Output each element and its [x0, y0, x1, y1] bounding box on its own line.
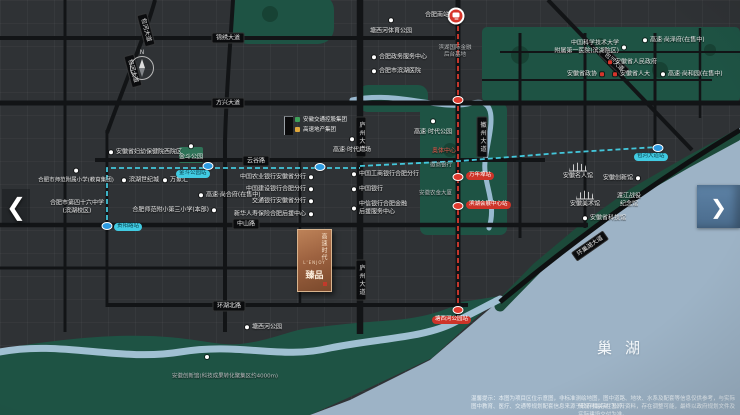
wannianbu-station-pill: 万年埠站	[466, 172, 494, 180]
left-chevron-icon: ❮	[6, 193, 26, 221]
gaosu-shangzefu-label: 高速·尚泽府(在售中)	[643, 36, 705, 44]
poi-dot-marker	[352, 206, 356, 210]
poi-dot-marker	[352, 187, 356, 191]
gaosu-shangheyuan-label-text: 高速·尚和园(在售中)	[668, 70, 723, 78]
poi-dot-marker	[199, 193, 203, 197]
no46-middle-school-label-text: 合肥市第四十六中学 (滨湖校区)	[50, 200, 104, 215]
convention-center-station-pill: 滨湖会展中心站	[466, 201, 511, 209]
poi-dot-marker	[205, 355, 209, 359]
poi-dot-marker	[109, 150, 113, 154]
dujiang-memorial-label: 渡江战役 纪念馆	[617, 193, 641, 208]
poi-dot-marker	[309, 187, 313, 191]
poi-dot-marker	[372, 69, 376, 73]
road-label-pill: 中山路	[232, 219, 259, 230]
poi-dot-marker	[661, 72, 665, 76]
sports-center-label-text: 奥体中心	[432, 147, 456, 155]
poi-dot-marker	[309, 199, 313, 203]
plaque-project-name: 臻品	[298, 268, 331, 281]
metro-station-marker	[102, 222, 113, 230]
dujiang-memorial-label-text: 渡江战役 纪念馆	[617, 193, 641, 208]
boc-bank-label: 中国银行	[352, 185, 383, 193]
icbc-bank-label-text: 中国工商银行合肥分行	[359, 170, 419, 178]
plaque-latin-text: L'ENJOY	[298, 260, 331, 265]
location-map: 高速时代 L'ENJOY 臻品 N ❮ ❯ 巢湖 温馨提示：本图为项目区位示意图…	[0, 0, 740, 415]
jindou-park-label: 金斗公园	[179, 153, 203, 161]
science-museum-label: 安徽省科技馆	[583, 214, 626, 222]
disclaimer-line-2: 图中教育、医疗、交通等规划配套信息来源于政府相关部门公开资料，存在调整可能，最终…	[470, 404, 736, 415]
developer-logo-1: 高速地产集团	[295, 125, 336, 133]
anhui-zhengxie-label: 安徽省政协	[567, 70, 604, 78]
red-square-marker	[608, 60, 612, 64]
poi-dot-marker	[122, 178, 126, 182]
binhu-century-city-label-text: 滨湖世纪城	[129, 176, 159, 184]
normal-primary-school-label-text: 合肥师范附小第三小学(本部)	[132, 206, 209, 214]
nongjin-tower-label: 安徽农金大厦	[419, 191, 452, 198]
tangxihe-park-station-pill: 塘西河公园站	[432, 316, 471, 324]
road-label-pill: 方兴大道	[211, 98, 244, 109]
red-square-marker	[600, 72, 604, 76]
poi-dot-marker	[643, 38, 647, 42]
road-label-pill: 徽州大道	[477, 117, 488, 158]
icbc-bank-label: 中国工商银行合肥分行	[352, 170, 419, 178]
road-label-pill: 环湖北路	[212, 301, 245, 312]
gaosu-times-park-label-text: 高速·时代公园	[414, 128, 452, 136]
poi-dot-marker	[74, 169, 78, 173]
financial-backoffice-label-text: 滨湖国际金融 后台基地	[438, 45, 471, 59]
road-label-pill: 云谷路	[242, 156, 269, 167]
tangxihe-park-label-text: 塘西河公园	[252, 323, 282, 331]
innovation-hall-label-text: 安徽创新馆	[603, 174, 633, 182]
normal-attached-primary-label: 合肥市师范附属小学(教育集团)	[38, 178, 114, 185]
binhu-hospital-label: 合肥市滨湖医院	[372, 67, 421, 75]
poi-dot-marker	[372, 55, 376, 59]
plaque-seal-icon	[323, 282, 327, 286]
developer-logo-icon	[295, 117, 300, 122]
tangxihe-park-label: 塘西河公园	[245, 323, 282, 331]
metro-station-marker	[453, 96, 464, 104]
science-museum-label-text: 安徽省科技馆	[590, 214, 626, 222]
bocom-bank-label: 交通银行安徽省分行	[252, 197, 313, 205]
nongjin-tower-label-text: 安徽农金大厦	[419, 191, 452, 198]
tangxihe-sports-park-label: 塘西河体育公园	[370, 27, 412, 35]
art-museum-label-text: 安徽美术馆	[570, 200, 600, 208]
ustc-hospital-label: 中国科学技术大学 附属第一医院(滨湖院区)	[554, 40, 626, 55]
tower-sketch-icon	[284, 116, 293, 135]
gaosu-times-park-label: 高速·时代公园	[414, 128, 452, 136]
metro-station-marker	[453, 173, 464, 181]
compass-needle-icon	[139, 59, 145, 68]
jindou-park-label-text: 金斗公园	[179, 153, 203, 161]
huishang-bank-label: 徽商银行	[430, 163, 452, 170]
baohe-avenue-station-pill: 包河大道站	[634, 153, 668, 161]
poi-dot-marker	[212, 208, 216, 212]
ustc-hospital-label-text: 中国科学技术大学 附属第一医院(滨湖院区)	[554, 40, 619, 55]
sports-center-label: 奥体中心	[432, 147, 456, 155]
metro-station-marker	[315, 163, 326, 171]
gaosu-shanghefu-label: 高速·尚合府(在售中)	[199, 191, 261, 199]
gov-service-center-label: 合肥政务服务中心	[372, 53, 427, 61]
compass-north-label: N	[140, 49, 145, 56]
prev-arrow-button[interactable]: ❮	[2, 189, 30, 225]
metro-station-marker	[453, 306, 464, 314]
poi-dot-marker	[350, 137, 354, 141]
huishang-bank-label-text: 徽商银行	[430, 163, 452, 170]
poi-dot-marker	[352, 172, 356, 176]
poi-dot-marker	[622, 45, 626, 49]
gaosu-shanghefu-label-text: 高速·尚合府(在售中)	[206, 191, 261, 199]
abc-bank-label-text: 中国农业银行安徽省分行	[240, 173, 306, 181]
citic-bank-label: 中信银行合肥金融 后援服务中心	[352, 201, 407, 216]
xinhua-insurance-label: 新华人寿保险合肥后援中心	[234, 210, 313, 218]
no46-middle-school-label: 合肥市第四十六中学 (滨湖校区)	[50, 200, 104, 215]
railway-station-icon	[448, 8, 465, 25]
abc-bank-label: 中国农业银行安徽省分行	[240, 173, 313, 181]
poi-dot-marker	[636, 176, 640, 180]
next-arrow-button[interactable]: ❯	[697, 185, 740, 228]
anhui-innovation-hall-note-text: 安徽创新馆(科技成果转化聚集区约4000m)	[172, 374, 278, 381]
right-chevron-icon: ❯	[710, 195, 727, 219]
anhui-gov-label: 安徽省人民政府	[608, 58, 657, 66]
metro-station-marker	[203, 162, 214, 170]
hefei-south-station-label: 合肥南站	[425, 11, 449, 19]
innovation-hall-label: 安徽创新馆	[603, 174, 640, 182]
red-square-marker	[613, 72, 617, 76]
xinhua-insurance-label-text: 新华人寿保险合肥后援中心	[234, 210, 306, 218]
anhui-gov-label-text: 安徽省人民政府	[615, 58, 657, 66]
anhui-zhengxie-label-text: 安徽省政协	[567, 70, 597, 78]
compass-icon: N	[130, 56, 154, 80]
maternity-hospital-label: 安徽省妇幼保健院西院区	[109, 148, 182, 156]
celebrity-hall-label: 安徽名人馆	[563, 172, 593, 180]
developer-logo-text: 高速地产集团	[303, 125, 336, 133]
gov-service-center-label-text: 合肥政务服务中心	[379, 53, 427, 61]
gaosu-shangheyuan-label: 高速·尚和园(在售中)	[661, 70, 723, 78]
poi-dot-marker	[309, 212, 313, 216]
tangxihe-sports-park-label-text: 塘西河体育公园	[370, 27, 412, 35]
normal-primary-school-label: 合肥师范附小第三小学(本部)	[132, 206, 216, 214]
poi-dot-marker	[309, 175, 313, 179]
boc-bank-label-text: 中国银行	[359, 185, 383, 193]
anhui-innovation-hall-note: 安徽创新馆(科技成果转化聚集区约4000m)	[172, 374, 278, 381]
binhu-hospital-label-text: 合肥市滨湖医院	[379, 67, 421, 75]
celebrity-hall-label-text: 安徽名人馆	[563, 172, 593, 180]
guiyang-road-station-pill: 贵阳路站	[114, 223, 142, 231]
metro-station-marker	[453, 202, 464, 210]
poi-dot-marker	[163, 178, 167, 182]
financial-backoffice-label: 滨湖国际金融 后台基地	[438, 45, 471, 59]
normal-attached-primary-label-text: 合肥市师范附属小学(教育集团)	[38, 178, 114, 185]
developer-logo-icon	[295, 127, 300, 132]
anhui-renda-label-text: 安徽省人大	[620, 70, 650, 78]
lake-name-label: 巢湖	[597, 337, 653, 358]
hefei-south-station-label-text: 合肥南站	[425, 11, 449, 19]
poi-dot-marker	[583, 216, 587, 220]
road-label-pill: 锦绣大道	[211, 33, 244, 44]
poi-dot-marker	[389, 18, 393, 22]
gaosu-shangzefu-label-text: 高速·尚泽府(在售中)	[650, 36, 705, 44]
gaosu-times-square-label: 高速·时代广场	[333, 146, 371, 154]
metro-station-marker	[653, 144, 664, 152]
citic-bank-label-text: 中信银行合肥金融 后援服务中心	[359, 201, 407, 216]
compass-needle-tail	[139, 68, 145, 77]
jindou-park-station-pill: 金斗公园站	[176, 170, 210, 178]
anhui-renda-label: 安徽省人大	[613, 70, 650, 78]
poi-dot-marker	[431, 119, 435, 123]
poi-dot-marker	[189, 144, 193, 148]
project-logo-plaque: 高速时代 L'ENJOY 臻品	[297, 229, 332, 292]
maternity-hospital-label-text: 安徽省妇幼保健院西院区	[116, 148, 182, 156]
binhu-century-city-label: 滨湖世纪城	[122, 176, 159, 184]
developer-logo-text: 安徽交通控股集团	[303, 115, 347, 123]
poi-dot-marker	[245, 325, 249, 329]
plaque-vertical-text: 高速时代	[319, 233, 328, 261]
art-museum-label: 安徽美术馆	[570, 200, 600, 208]
gaosu-times-square-label-text: 高速·时代广场	[333, 146, 371, 154]
road-label-pill: 庐州大道	[356, 260, 367, 301]
developer-logo-0: 安徽交通控股集团	[295, 115, 347, 123]
